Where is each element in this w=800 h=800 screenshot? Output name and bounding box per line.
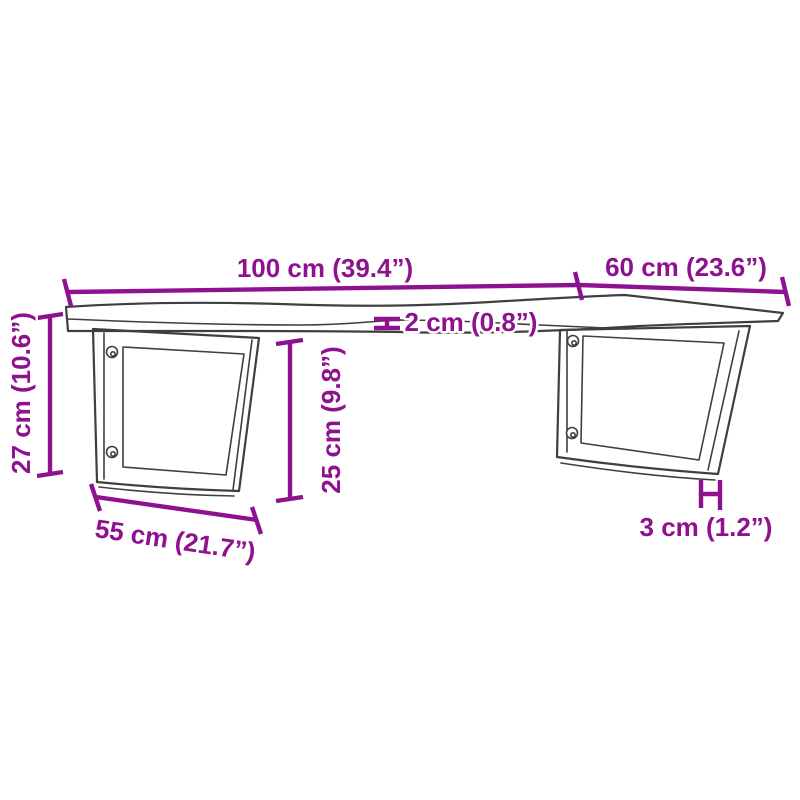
dim-label-depth: 60 cm (23.6”) (605, 252, 767, 282)
dim-label-bracket-depth: 3 cm (1.2”) (640, 512, 773, 542)
dim-label-length: 100 cm (39.4”) (237, 253, 413, 283)
bracket-left-window (123, 347, 244, 475)
screw-hole-icon (111, 452, 115, 456)
dimension-diagram: 100 cm (39.4”) 60 cm (23.6”) 2 cm (0.8”)… (0, 0, 800, 800)
dim-tick (276, 340, 303, 344)
dim-label-thickness: 2 cm (0.8”) (405, 307, 538, 337)
dim-label-bracket-width: 55 cm (21.7”) (93, 513, 258, 567)
shelf-front-edge-line (68, 319, 628, 329)
dim-marker-bracket-depth (701, 480, 720, 510)
dim-tick (37, 472, 63, 476)
dim-line-depth (579, 285, 786, 292)
dim-tick (276, 497, 303, 501)
dim-line-length (68, 285, 579, 292)
screw-hole-icon (572, 341, 576, 345)
bracket-right-window (581, 336, 724, 460)
bracket-right (557, 326, 750, 480)
dim-label-total-height: 27 cm (10.6”) (6, 312, 36, 474)
dim-label-bracket-height: 25 cm (9.8”) (316, 346, 346, 493)
screw-hole-icon (571, 433, 575, 437)
screw-hole-icon (111, 352, 115, 356)
dim-tick (37, 314, 63, 318)
bracket-left (93, 329, 259, 496)
dim-marker-thickness (374, 319, 400, 328)
bracket-right-frame (557, 326, 750, 474)
